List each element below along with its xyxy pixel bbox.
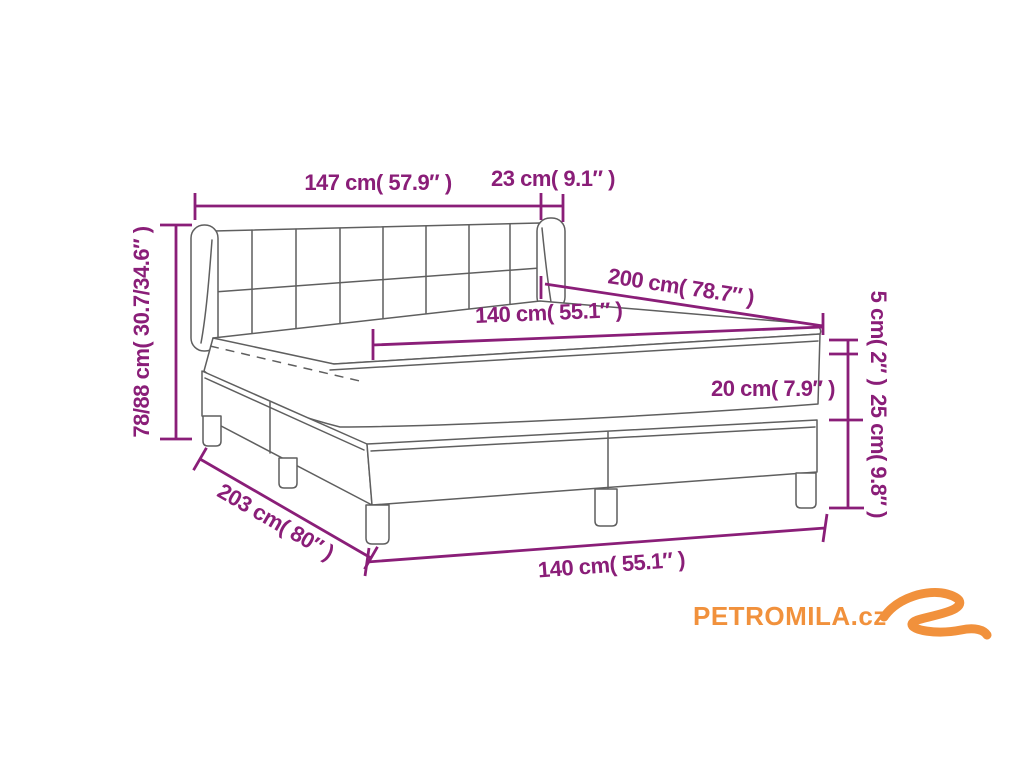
label-base-height: 25 cm( 9.8″ ) xyxy=(866,394,891,518)
base-front-face xyxy=(367,420,817,505)
label-topper-height: 5 cm( 2″ ) xyxy=(866,291,891,386)
label-frame-width: 140 cm( 55.1″ ) xyxy=(537,547,686,583)
leg-back-left xyxy=(203,416,221,446)
label-wing-depth: 23 cm( 9.1″ ) xyxy=(491,166,615,191)
dim-line-height xyxy=(160,225,192,439)
label-bed-length: 200 cm( 78.7″ ) xyxy=(606,263,756,310)
bed-dimension-diagram: 147 cm( 57.9″ ) 23 cm( 9.1″ ) 78/88 cm( … xyxy=(0,0,1024,768)
label-frame-length: 203 cm( 80″ ) xyxy=(213,478,338,565)
leg-front-middle xyxy=(595,489,617,526)
logo-swoosh-icon xyxy=(884,593,987,635)
leg-side-middle xyxy=(279,458,297,488)
label-bed-height: 78/88 cm( 30.7/34.6″ ) xyxy=(129,226,154,437)
headboard-left-roll xyxy=(191,225,218,351)
label-mattress-height: 20 cm( 7.9″ ) xyxy=(711,376,835,401)
diagram-page: 147 cm( 57.9″ ) 23 cm( 9.1″ ) 78/88 cm( … xyxy=(0,0,1024,768)
leg-front-right xyxy=(796,473,816,508)
logo: PETROMILA.cz xyxy=(693,593,987,635)
leg-front-corner xyxy=(366,505,389,544)
dim-line-top xyxy=(195,193,563,222)
dim-line-right-stack xyxy=(829,340,864,508)
label-headboard-width: 147 cm( 57.9″ ) xyxy=(304,170,452,195)
logo-text: PETROMILA.cz xyxy=(693,601,887,631)
